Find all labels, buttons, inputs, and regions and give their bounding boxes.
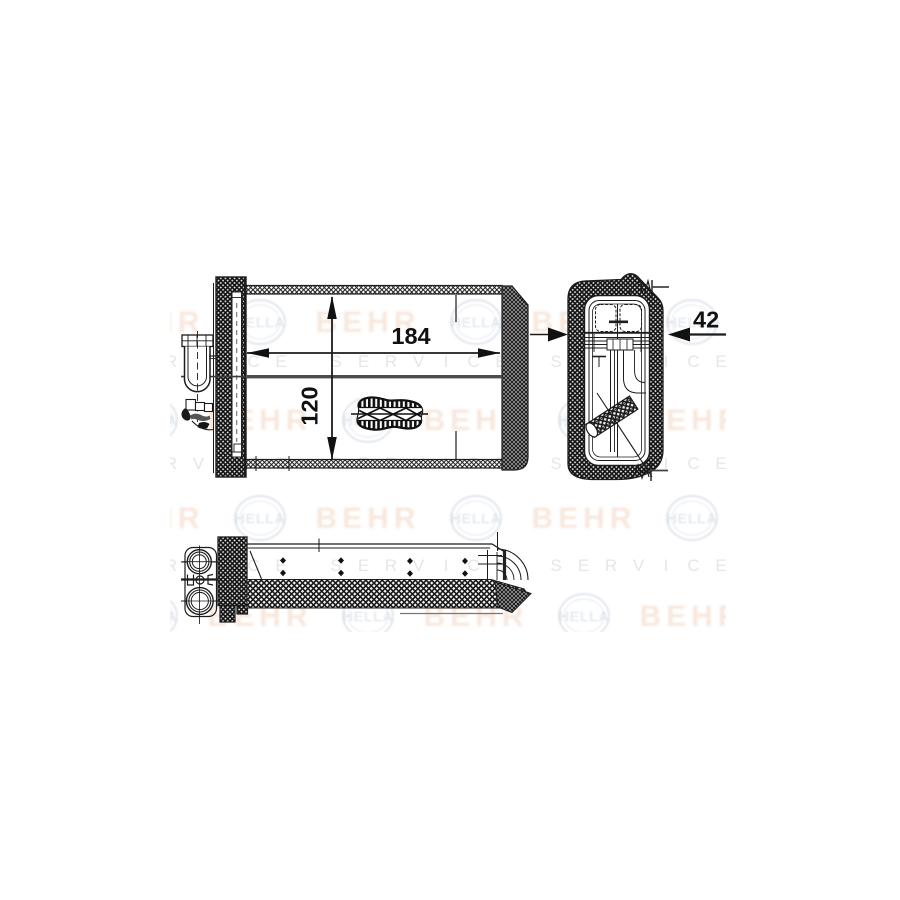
svg-text:184: 184 [391, 323, 430, 349]
svg-text:42: 42 [693, 307, 719, 333]
svg-text:120: 120 [297, 386, 323, 425]
